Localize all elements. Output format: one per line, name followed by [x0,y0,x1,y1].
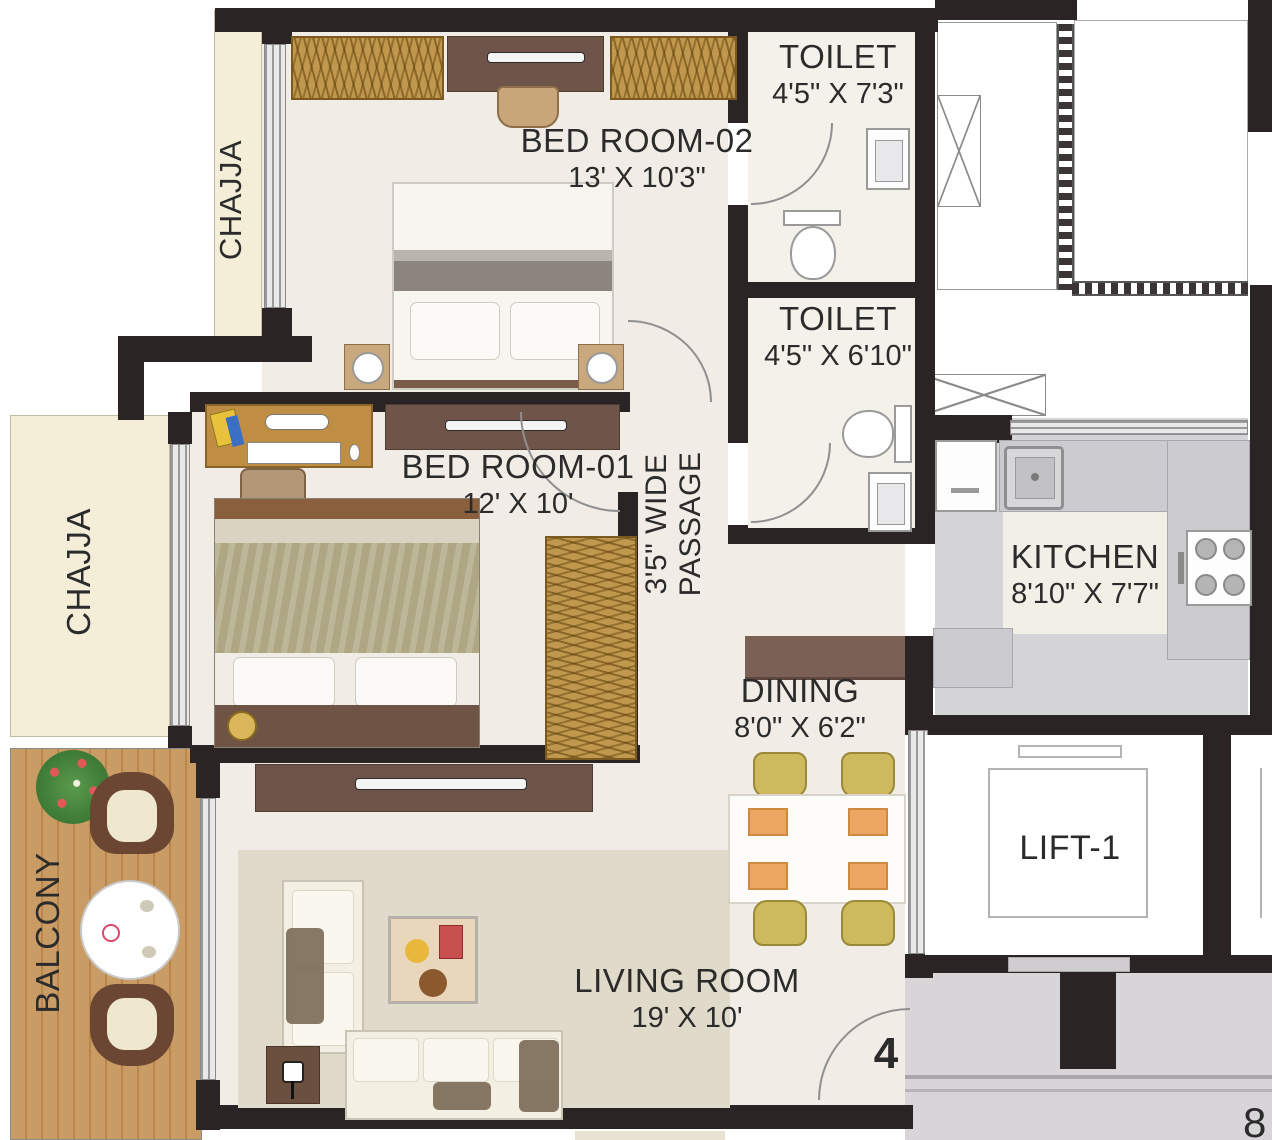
wall [905,954,933,978]
duct-icon [937,95,981,207]
lift1-label: LIFT-1 [970,828,1170,868]
wc-tank [894,405,912,463]
bed-blanket [215,543,479,653]
room-dims: 13' X 10'3" [437,161,837,195]
kitchen-label: KITCHEN 8'10" X 7'7" [935,538,1235,611]
bed-sheet [215,519,479,543]
drain [1031,473,1039,481]
cup-icon [142,946,156,958]
wall [728,205,748,287]
wall [168,726,192,748]
basin-bowl [875,140,903,182]
room-name: TOILET [738,300,938,339]
wall [118,362,144,420]
window-icon [200,798,216,1080]
dining-chair-icon [841,752,895,798]
toilet1-label: TOILET 4'5" X 7'3" [738,38,938,111]
wall [728,282,935,298]
corridor-line [905,1075,1272,1079]
wardrobe-icon [291,36,444,100]
chajja-top-label: CHAJJA [213,90,263,310]
room-name: KITCHEN [935,538,1235,577]
basin-bowl [877,483,905,525]
side-table-icon [266,1046,320,1104]
bed-icon [214,498,480,748]
armchair-icon [90,984,174,1066]
living-label: LIVING ROOM 19' X 10' [487,962,887,1035]
room-name: BED ROOM-02 [437,122,837,161]
room-name: DINING [650,672,950,711]
placemat [748,808,788,836]
washbasin-icon [868,472,912,532]
wall [1203,733,1231,955]
placemat [848,862,888,890]
room-dims: 4'5" X 7'3" [738,77,938,111]
wc-tank [783,210,841,226]
wall [196,1080,220,1130]
chajja-left-label: CHAJJA [60,457,116,687]
wall [905,715,1272,735]
cushion [353,1038,419,1082]
lift1-door [1018,745,1122,758]
room-name: LIVING ROOM [487,962,887,1001]
corridor-line [905,1089,1272,1092]
sofa-icon [282,880,364,1054]
sink-icon [1004,446,1064,510]
cushion [423,1038,489,1082]
wardrobe-icon [545,536,637,760]
room-name: CHAJJA [213,90,249,310]
dining-chair-icon [841,900,895,946]
dining-label: DINING 8'0" X 6'2" [650,672,950,745]
room-dims: 8'10" X 7'7" [935,577,1235,611]
bed-blanket [394,261,612,291]
tv-unit-icon [447,36,604,92]
hall-floor [728,544,905,636]
wall [215,8,938,32]
room-dims: 4'5" X 6'10" [738,339,938,373]
throw-pillow [433,1082,491,1110]
dashed-wall [1072,281,1248,296]
wall [196,748,220,798]
snack-bowl-icon [405,939,429,963]
tv-icon [355,778,527,790]
round-table-icon [80,880,180,980]
bed-blanket [394,250,612,261]
wall [1060,973,1116,1069]
refrigerator-icon [935,440,997,512]
shaft-area [1074,20,1248,282]
balcony-label: BALCONY [29,813,85,1053]
below-wall-object [575,1131,725,1140]
dining-chair-icon [753,752,807,798]
passage-label: 3'5" WIDE PASSAGE [640,409,716,639]
lamp-icon [586,352,618,384]
placemat [748,862,788,890]
wc-icon [790,226,836,280]
nightstand-icon [344,344,390,390]
handle [951,488,979,493]
pillow [355,657,457,707]
tv-icon [487,52,585,63]
wall [1250,285,1272,715]
lift2-car [1260,768,1272,918]
tray-icon [439,925,463,959]
wall [920,415,1012,443]
cushion [107,998,157,1050]
dining-chair-icon [753,900,807,946]
nightstand-icon [578,344,624,390]
window-icon [1010,420,1248,435]
room-dims: 8'0" X 6'2" [650,711,950,745]
wc-icon [842,410,894,458]
wardrobe-icon [610,36,737,100]
wall [216,1105,913,1129]
duct-icon [922,374,1046,416]
throw-blanket [519,1040,559,1112]
sofa-icon [345,1030,563,1120]
cushion [107,790,157,842]
lamp-icon [282,1061,304,1083]
bedroom2-label: BED ROOM-02 13' X 10'3" [437,122,837,195]
passage-line1: 3'5" WIDE [640,409,674,639]
coffee-table-icon [388,916,478,1004]
wall [168,412,192,444]
floor-plan: BED ROOM-02 13' X 10'3" TOILET 4'5" X 7'… [0,0,1272,1140]
pillow [410,302,500,360]
room-name: CHAJJA [60,457,98,687]
decor-icon [102,924,120,942]
decor-plate-icon [227,711,257,741]
dashed-wall [1057,24,1074,290]
lift-lobby-opening [1008,957,1130,972]
throw-blanket [286,928,324,1024]
armchair-icon [90,772,174,854]
cup-icon [140,900,154,912]
washbasin-icon [866,128,910,190]
placemat [848,808,888,836]
basket-icon [419,969,447,997]
lamp-icon [352,352,384,384]
window-icon [170,444,190,726]
toilet2-label: TOILET 4'5" X 6'10" [738,300,938,373]
edge-number: 8 [1243,1098,1272,1140]
lamp-stem [291,1081,294,1099]
room-dims: 19' X 10' [487,1001,887,1035]
unit-number: 4 [856,1028,916,1080]
wall [1248,0,1272,132]
dining-table-icon [728,794,906,904]
monitor-icon [265,414,329,430]
room-name: TOILET [738,38,938,77]
wall [935,0,1077,20]
window-icon [264,44,286,308]
wall [118,336,312,362]
pillow [233,657,335,707]
room-name: BALCONY [29,813,67,1053]
passage-line2: PASSAGE [674,409,708,639]
wall [262,8,292,44]
room-name: LIFT-1 [970,828,1170,868]
